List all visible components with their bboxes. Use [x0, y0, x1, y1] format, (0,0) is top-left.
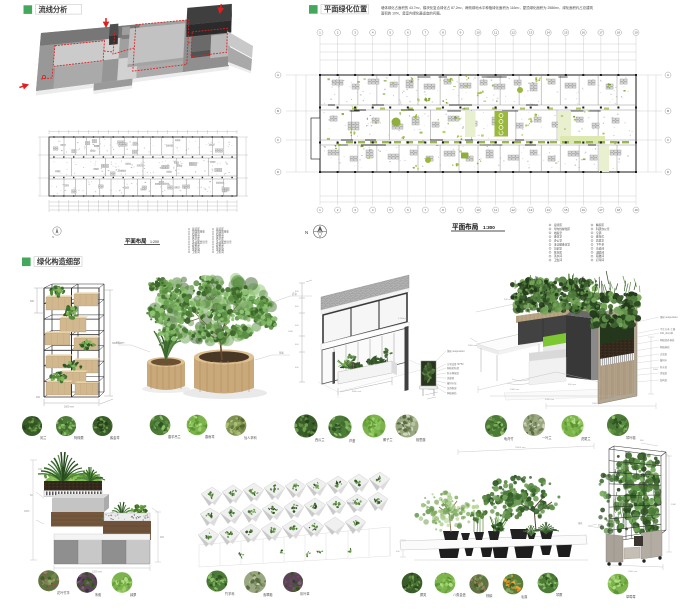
svg-text:1:300: 1:300 [483, 225, 495, 230]
svg-text:900 mm: 900 mm [504, 299, 512, 301]
svg-text:找坡层: 找坡层 [660, 371, 668, 375]
svg-text:总裁室: 总裁室 [596, 239, 604, 243]
svg-text:种植营养基质: 种植营养基质 [660, 338, 675, 342]
svg-text:14: 14 [547, 31, 551, 35]
svg-text:流线分析: 流线分析 [39, 5, 69, 14]
svg-text:4500 mm: 4500 mm [545, 399, 554, 401]
svg-text:600: 600 [30, 300, 35, 303]
svg-text:会议室: 会议室 [554, 235, 562, 239]
svg-text:洽谈间: 洽谈间 [596, 246, 604, 250]
svg-text:平面布局: 平面布局 [125, 237, 147, 245]
svg-text:N: N [52, 235, 54, 239]
svg-text:2000 mm: 2000 mm [64, 406, 74, 409]
svg-text:卫生间: 卫生间 [192, 250, 200, 254]
svg-text:2400 mm: 2400 mm [510, 389, 519, 391]
svg-text:精养区: 精养区 [596, 223, 604, 227]
svg-text:饰面: 饰面 [279, 351, 284, 355]
svg-text:1500 mm: 1500 mm [592, 403, 601, 405]
svg-text:B: B [667, 109, 669, 113]
svg-text:1800 mm: 1800 mm [468, 345, 477, 347]
svg-text:6000 mm: 6000 mm [352, 391, 361, 393]
svg-text:19: 19 [634, 31, 638, 35]
svg-text:培训室: 培训室 [554, 246, 562, 250]
svg-text:退踏间: 退踏间 [596, 250, 604, 254]
svg-text:13: 13 [529, 31, 533, 35]
svg-text:11: 11 [494, 208, 497, 212]
svg-text:2,100mm: 2,100mm [398, 318, 407, 320]
svg-text:档案室: 档案室 [554, 231, 562, 235]
svg-text:阿珠蕨: 阿珠蕨 [74, 435, 84, 440]
svg-text:平面绿化位置: 平面绿化位置 [324, 5, 367, 14]
svg-text:±0.00: ±0.00 [428, 389, 434, 391]
svg-text:2400: 2400 [288, 331, 294, 333]
svg-text:B: B [277, 109, 279, 113]
svg-text:16: 16 [582, 208, 586, 212]
svg-text:休息区: 休息区 [554, 250, 562, 254]
svg-text:过滤层: 过滤层 [660, 352, 668, 356]
svg-text:平面布局: 平面布局 [452, 222, 479, 231]
svg-text:卫生间: 卫生间 [554, 258, 562, 262]
svg-text:钢丝 suspension: 钢丝 suspension [660, 315, 678, 319]
svg-text:A: A [667, 73, 669, 77]
svg-text:防水隔根层: 防水隔根层 [447, 371, 460, 375]
svg-text:蓄排水: 蓄排水 [660, 358, 668, 362]
svg-text:空调: 空调 [596, 231, 602, 235]
svg-text:1800: 1800 [24, 510, 30, 513]
svg-text:14: 14 [547, 208, 551, 212]
svg-text:19: 19 [634, 208, 638, 212]
svg-text:1500 mm: 1500 mm [628, 571, 637, 573]
svg-text:600 mm: 600 mm [568, 384, 576, 386]
svg-text:绿化构造细部: 绿化构造细部 [37, 257, 80, 266]
svg-text:15: 15 [564, 208, 568, 212]
svg-text:450 mm: 450 mm [116, 342, 125, 345]
svg-text:卫生间: 卫生间 [216, 250, 224, 254]
svg-text:凤兰: 凤兰 [40, 435, 46, 440]
svg-text:15: 15 [564, 31, 568, 35]
svg-text:15000 mm: 15000 mm [515, 447, 526, 449]
svg-text:400: 400 [36, 396, 41, 399]
svg-text:2400: 2400 [671, 504, 677, 506]
svg-text:钢丝 suspension: 钢丝 suspension [447, 349, 465, 353]
svg-text:平生方木-土壤: 平生方木-土壤 [660, 327, 676, 331]
svg-text:13: 13 [529, 208, 533, 212]
svg-text:春芋吊兰: 春芋吊兰 [168, 434, 181, 439]
svg-text:墙体绿化占面积的 43.7m²，模块化复合绿化占 87.2m: 墙体绿化占面积的 43.7m²，模块化复合绿化占 87.2m²，两侧绿地水平种植… [381, 5, 593, 10]
svg-text:1:200: 1:200 [150, 240, 159, 244]
svg-text:面积的 10%，是室内绿化最适宜的问题。: 面积的 10%，是室内绿化最适宜的问题。 [381, 11, 443, 16]
svg-text:种植毛毡袋: 种植毛毡袋 [447, 366, 460, 370]
svg-text:滴灌管: 滴灌管 [447, 376, 455, 380]
svg-text:A: A [277, 73, 279, 77]
svg-text:下午茶: 下午茶 [596, 243, 604, 247]
svg-text:900: 900 [160, 536, 165, 539]
svg-text:龙骨框架: 龙骨框架 [447, 386, 457, 390]
svg-text:防水层: 防水层 [660, 365, 668, 369]
svg-text:18: 18 [617, 208, 621, 212]
svg-text:12: 12 [511, 31, 515, 35]
svg-text:18: 18 [617, 31, 621, 35]
svg-text:16: 16 [582, 31, 586, 35]
svg-text:种植模块: 种植模块 [347, 501, 357, 505]
svg-text:蓄排水层: 蓄排水层 [447, 381, 457, 385]
svg-text:100_2mm厚: 100_2mm厚 [660, 331, 674, 335]
svg-text:科研办公室: 科研办公室 [596, 227, 610, 231]
svg-text:多功能会议室: 多功能会议室 [554, 243, 570, 247]
svg-text:打印间: 打印间 [596, 258, 604, 262]
svg-text:导向性绿化区: 导向性绿化区 [554, 227, 570, 231]
svg-text:鹅金琴: 鹅金琴 [110, 435, 120, 440]
svg-text:N: N [305, 230, 308, 235]
svg-text:11: 11 [494, 31, 497, 35]
svg-text:17: 17 [599, 208, 603, 212]
svg-text:10: 10 [476, 208, 480, 212]
svg-text:办公室: 办公室 [554, 239, 562, 243]
svg-text:结构层: 结构层 [660, 378, 668, 382]
svg-text:种植基质: 种植基质 [447, 391, 457, 395]
svg-text:2000: 2000 [653, 369, 659, 371]
svg-text:12: 12 [511, 208, 515, 212]
svg-text:1200 mm: 1200 mm [92, 571, 102, 574]
svg-text:种植基质: 种植基质 [660, 345, 670, 349]
svg-text:接待区: 接待区 [554, 223, 562, 227]
svg-text:疏散间: 疏散间 [596, 254, 604, 258]
svg-text:茶水间: 茶水间 [554, 254, 562, 258]
svg-text:17: 17 [599, 31, 603, 35]
svg-text:健身房: 健身房 [596, 235, 604, 239]
svg-text:10: 10 [476, 31, 480, 35]
svg-text:方管龙骨 50*50: 方管龙骨 50*50 [447, 362, 464, 366]
